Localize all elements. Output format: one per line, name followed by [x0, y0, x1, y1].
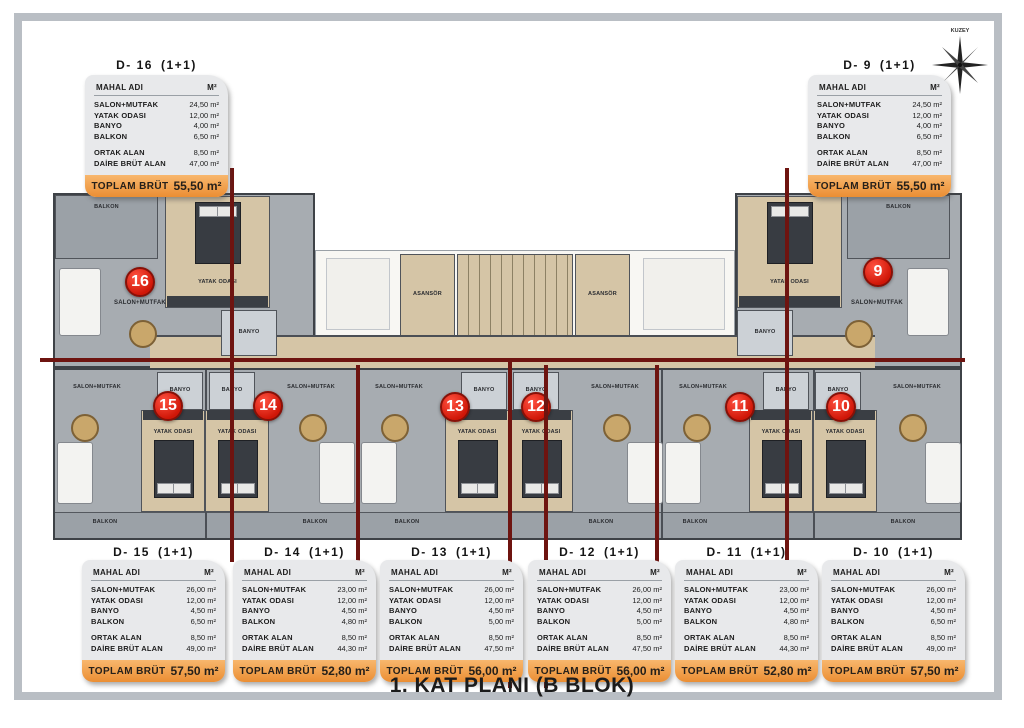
bed-icon: [154, 440, 194, 498]
row-value: 8,50 m²: [175, 148, 219, 159]
elevator-shaft-right: ASANSÖR: [575, 254, 630, 338]
row-value: 12,00 m²: [323, 596, 367, 607]
bed-icon: [762, 440, 802, 498]
unit16-living-label: SALON+MUTFAK: [90, 300, 190, 307]
row-value: 12,00 m²: [470, 596, 514, 607]
balcony-label: BALKON: [566, 519, 636, 526]
row-label: DAİRE BRÜT ALAN: [817, 159, 889, 170]
unit16-bedroom-label: YATAK ODASI: [166, 279, 269, 286]
row-label: YATAK ODASI: [831, 596, 883, 607]
row-label: ORTAK ALAN: [684, 633, 735, 644]
unit-id: D- 10: [853, 545, 890, 559]
unit-circle-16: 16: [125, 267, 155, 297]
row-value: 12,00 m²: [898, 111, 942, 122]
row-value: 12,00 m²: [175, 111, 219, 122]
card-header-name: MAHAL ADI: [686, 568, 733, 577]
living-label: SALON+MUTFAK: [53, 384, 141, 391]
unit-card-d16: MAHAL ADIM² SALON+MUTFAK24,50 m² YATAK O…: [85, 75, 228, 197]
core-terrace-left: [326, 258, 390, 330]
unit-type: (1+1): [161, 58, 197, 72]
row-value: 26,00 m²: [618, 585, 662, 596]
row-value: 26,00 m²: [470, 585, 514, 596]
living-label: SALON+MUTFAK: [873, 384, 961, 391]
row-label: BANYO: [817, 121, 845, 132]
row-value: 8,50 m²: [912, 633, 956, 644]
card-header-unit: M²: [797, 568, 807, 577]
bed-icon: [522, 440, 562, 498]
dining-table-icon: [845, 320, 873, 348]
row-label: BALKON: [94, 132, 127, 143]
row-value: 47,00 m²: [175, 159, 219, 170]
unit-card-title-d11: D- 11(1+1): [675, 545, 818, 559]
row-value: 12,00 m²: [912, 596, 956, 607]
section-line-horizontal: [40, 358, 965, 362]
row-value: 4,00 m²: [898, 121, 942, 132]
unit-card-title-d9: D- 9(1+1): [808, 58, 951, 72]
pillow: [237, 483, 255, 494]
unit-circle-13: 13: [440, 392, 470, 422]
unit-type: (1+1): [456, 545, 492, 559]
row-label: BALKON: [831, 617, 864, 628]
unit9-living-label: SALON+MUTFAK: [827, 300, 927, 307]
card-header-name: MAHAL ADI: [96, 83, 143, 92]
row-value: 4,80 m²: [323, 617, 367, 628]
card-header-name: MAHAL ADI: [819, 83, 866, 92]
row-label: ORTAK ALAN: [91, 633, 142, 644]
row-value: 44,30 m²: [765, 644, 809, 655]
unit-type: (1+1): [880, 58, 916, 72]
row-value: 5,00 m²: [470, 617, 514, 628]
row-value: 26,00 m²: [912, 585, 956, 596]
unit9-balcony-label: BALKON: [848, 204, 949, 211]
unit-card-d14: MAHAL ADIM² SALON+MUTFAK23,00 m² YATAK O…: [233, 560, 376, 682]
row-value: 26,00 m²: [172, 585, 216, 596]
unit-type: (1+1): [751, 545, 787, 559]
unit9-bathroom-label: BANYO: [738, 329, 792, 336]
total-label: TOPLAM BRÜT: [814, 181, 891, 192]
living-label: SALON+MUTFAK: [659, 384, 747, 391]
row-value: 24,50 m²: [175, 100, 219, 111]
row-label: SALON+MUTFAK: [94, 100, 158, 111]
dining-table-icon: [683, 414, 711, 442]
pillow: [173, 483, 191, 494]
row-label: SALON+MUTFAK: [817, 100, 881, 111]
pillow: [789, 206, 809, 217]
sofa-icon: [57, 442, 93, 504]
row-value: 47,50 m²: [618, 644, 662, 655]
row-label: ORTAK ALAN: [831, 633, 882, 644]
row-label: YATAK ODASI: [817, 111, 869, 122]
elevator-right-label: ASANSÖR: [576, 291, 629, 298]
row-value: 12,00 m²: [618, 596, 662, 607]
unit-type: (1+1): [158, 545, 194, 559]
unit-id: D- 14: [264, 545, 301, 559]
card-header-name: MAHAL ADI: [391, 568, 438, 577]
pillow: [477, 483, 495, 494]
sofa-icon: [665, 442, 701, 504]
unit-circle-11: 11: [725, 392, 755, 422]
unit-id: D- 9: [843, 58, 872, 72]
row-value: 44,30 m²: [323, 644, 367, 655]
unit16-balcony-label: BALKON: [56, 204, 157, 211]
row-value: 4,50 m²: [765, 606, 809, 617]
living-label: SALON+MUTFAK: [267, 384, 355, 391]
unit-type: (1+1): [898, 545, 934, 559]
bed-icon: [195, 202, 241, 264]
wardrobe-icon: [751, 410, 811, 420]
page-title: 1. KAT PLANI (B BLOK): [0, 674, 1024, 698]
unit-card-title-d16: D- 16(1+1): [85, 58, 228, 72]
unit-circle-15: 15: [153, 391, 183, 421]
bedroom-label: YATAK ODASI: [446, 429, 508, 436]
card-header-name: MAHAL ADI: [244, 568, 291, 577]
row-label: BANYO: [94, 121, 122, 132]
row-label: BANYO: [684, 606, 712, 617]
card-header-unit: M²: [207, 83, 217, 92]
bathroom-label: BANYO: [462, 387, 506, 394]
row-label: DAİRE BRÜT ALAN: [537, 644, 609, 655]
row-value: 8,50 m²: [618, 633, 662, 644]
row-value: 47,00 m²: [898, 159, 942, 170]
staircase: [457, 254, 573, 340]
row-value: 4,50 m²: [172, 606, 216, 617]
pillow: [781, 483, 799, 494]
balcony-label: BALKON: [660, 519, 730, 526]
row-value: 24,50 m²: [898, 100, 942, 111]
row-label: BALKON: [91, 617, 124, 628]
row-value: 8,50 m²: [898, 148, 942, 159]
unit-card-title-d15: D- 15(1+1): [82, 545, 225, 559]
row-label: BALKON: [817, 132, 850, 143]
unit9-balcony: BALKON: [847, 195, 950, 259]
row-value: 49,00 m²: [912, 644, 956, 655]
row-value: 6,50 m²: [175, 132, 219, 143]
pillow: [845, 483, 863, 494]
row-label: YATAK ODASI: [684, 596, 736, 607]
core-terrace-right: [643, 258, 725, 330]
unit-id: D- 16: [116, 58, 153, 72]
row-label: BANYO: [242, 606, 270, 617]
section-line-vertical: [230, 168, 234, 562]
row-label: DAİRE BRÜT ALAN: [831, 644, 903, 655]
unit-id: D- 15: [113, 545, 150, 559]
sofa-icon: [361, 442, 397, 504]
row-value: 8,50 m²: [323, 633, 367, 644]
dining-table-icon: [899, 414, 927, 442]
row-value: 6,50 m²: [898, 132, 942, 143]
row-label: YATAK ODASI: [389, 596, 441, 607]
row-value: 49,00 m²: [172, 644, 216, 655]
card-header-unit: M²: [930, 83, 940, 92]
row-label: DAİRE BRÜT ALAN: [94, 159, 166, 170]
row-value: 4,50 m²: [470, 606, 514, 617]
row-value: 8,50 m²: [765, 633, 809, 644]
total-value: 55,50 m²: [173, 179, 221, 193]
unit-card-title-d14: D- 14(1+1): [233, 545, 376, 559]
row-value: 5,00 m²: [618, 617, 662, 628]
bed-icon: [767, 202, 813, 264]
bedroom-label: YATAK ODASI: [814, 429, 876, 436]
balcony-label: BALKON: [70, 519, 140, 526]
card-header-name: MAHAL ADI: [833, 568, 880, 577]
row-label: DAİRE BRÜT ALAN: [684, 644, 756, 655]
row-label: SALON+MUTFAK: [91, 585, 155, 596]
unit-id: D- 11: [706, 545, 742, 559]
unit-card-title-d12: D- 12(1+1): [528, 545, 671, 559]
sofa-icon: [319, 442, 355, 504]
card-header-unit: M²: [502, 568, 512, 577]
row-label: DAİRE BRÜT ALAN: [242, 644, 314, 655]
unit-card-title-d10: D- 10(1+1): [822, 545, 965, 559]
row-label: BALKON: [684, 617, 717, 628]
living-label: SALON+MUTFAK: [571, 384, 659, 391]
row-label: SALON+MUTFAK: [389, 585, 453, 596]
row-label: DAİRE BRÜT ALAN: [389, 644, 461, 655]
row-value: 6,50 m²: [172, 617, 216, 628]
bedroom-label: YATAK ODASI: [142, 429, 204, 436]
unit-card-d13: MAHAL ADIM² SALON+MUTFAK26,00 m² YATAK O…: [380, 560, 523, 682]
unit-type: (1+1): [604, 545, 640, 559]
card-header-unit: M²: [355, 568, 365, 577]
unit-type: (1+1): [309, 545, 345, 559]
unit-circle-14: 14: [253, 391, 283, 421]
row-label: BANYO: [389, 606, 417, 617]
row-label: BALKON: [537, 617, 570, 628]
unit-card-d9: MAHAL ADIM² SALON+MUTFAK24,50 m² YATAK O…: [808, 75, 951, 197]
dining-table-icon: [129, 320, 157, 348]
dining-table-icon: [381, 414, 409, 442]
row-label: SALON+MUTFAK: [537, 585, 601, 596]
row-value: 12,00 m²: [172, 596, 216, 607]
row-label: BALKON: [389, 617, 422, 628]
row-value: 4,50 m²: [323, 606, 367, 617]
balcony-label: BALKON: [372, 519, 442, 526]
row-label: YATAK ODASI: [242, 596, 294, 607]
floor-plan-page: { "page": { "title": "1. KAT PLANI (B BL…: [0, 0, 1024, 728]
unit-id: D- 13: [411, 545, 448, 559]
dining-table-icon: [603, 414, 631, 442]
total-band: TOPLAM BRÜT55,50 m²: [85, 175, 228, 197]
row-value: 8,50 m²: [470, 633, 514, 644]
row-label: YATAK ODASI: [94, 111, 146, 122]
total-value: 55,50 m²: [896, 179, 944, 193]
unit-card-d11: MAHAL ADIM² SALON+MUTFAK23,00 m² YATAK O…: [675, 560, 818, 682]
unit-card-d15: MAHAL ADIM² SALON+MUTFAK26,00 m² YATAK O…: [82, 560, 225, 682]
wardrobe-icon: [739, 296, 840, 307]
living-label: SALON+MUTFAK: [355, 384, 443, 391]
unit-card-title-d13: D- 13(1+1): [380, 545, 523, 559]
floor-plan: ASANSÖR ASANSÖR BALKON YATAK ODASI BANYO…: [45, 188, 965, 545]
balcony-label: BALKON: [280, 519, 350, 526]
row-label: BANYO: [537, 606, 565, 617]
row-value: 23,00 m²: [765, 585, 809, 596]
row-label: ORTAK ALAN: [537, 633, 588, 644]
unit-circle-10: 10: [826, 392, 856, 422]
bed-icon: [826, 440, 866, 498]
elevator-left-label: ASANSÖR: [401, 291, 454, 298]
total-band: TOPLAM BRÜT55,50 m²: [808, 175, 951, 197]
balcony-label: BALKON: [868, 519, 938, 526]
bedroom-label: YATAK ODASI: [750, 429, 812, 436]
bed-icon: [218, 440, 258, 498]
row-value: 8,50 m²: [172, 633, 216, 644]
unit-id: D- 12: [559, 545, 596, 559]
row-value: 6,50 m²: [912, 617, 956, 628]
row-value: 4,00 m²: [175, 121, 219, 132]
dining-table-icon: [71, 414, 99, 442]
unit16-balcony: BALKON: [55, 195, 158, 259]
row-label: ORTAK ALAN: [94, 148, 145, 159]
row-value: 4,50 m²: [618, 606, 662, 617]
card-header-unit: M²: [650, 568, 660, 577]
row-value: 4,50 m²: [912, 606, 956, 617]
row-value: 23,00 m²: [323, 585, 367, 596]
unit-card-d10: MAHAL ADIM² SALON+MUTFAK26,00 m² YATAK O…: [822, 560, 965, 682]
row-value: 4,80 m²: [765, 617, 809, 628]
row-value: 47,50 m²: [470, 644, 514, 655]
row-label: SALON+MUTFAK: [684, 585, 748, 596]
row-label: BALKON: [242, 617, 275, 628]
card-header-unit: M²: [944, 568, 954, 577]
card-header-name: MAHAL ADI: [93, 568, 140, 577]
row-label: DAİRE BRÜT ALAN: [91, 644, 163, 655]
row-label: BANYO: [831, 606, 859, 617]
row-label: YATAK ODASI: [537, 596, 589, 607]
row-label: SALON+MUTFAK: [831, 585, 895, 596]
unit-card-d12: MAHAL ADIM² SALON+MUTFAK26,00 m² YATAK O…: [528, 560, 671, 682]
row-value: 12,00 m²: [765, 596, 809, 607]
unit9-bedroom-label: YATAK ODASI: [738, 279, 841, 286]
bed-icon: [458, 440, 498, 498]
bedroom-label: YATAK ODASI: [510, 429, 572, 436]
total-label: TOPLAM BRÜT: [91, 181, 168, 192]
sofa-icon: [925, 442, 961, 504]
row-label: BANYO: [91, 606, 119, 617]
row-label: YATAK ODASI: [91, 596, 143, 607]
card-header-name: MAHAL ADI: [539, 568, 586, 577]
card-header-unit: M²: [204, 568, 214, 577]
dining-table-icon: [299, 414, 327, 442]
unit-circle-9: 9: [863, 257, 893, 287]
bedroom-label: YATAK ODASI: [206, 429, 268, 436]
row-label: SALON+MUTFAK: [242, 585, 306, 596]
row-label: ORTAK ALAN: [242, 633, 293, 644]
row-label: ORTAK ALAN: [389, 633, 440, 644]
elevator-shaft-left: ASANSÖR: [400, 254, 455, 338]
row-label: ORTAK ALAN: [817, 148, 868, 159]
